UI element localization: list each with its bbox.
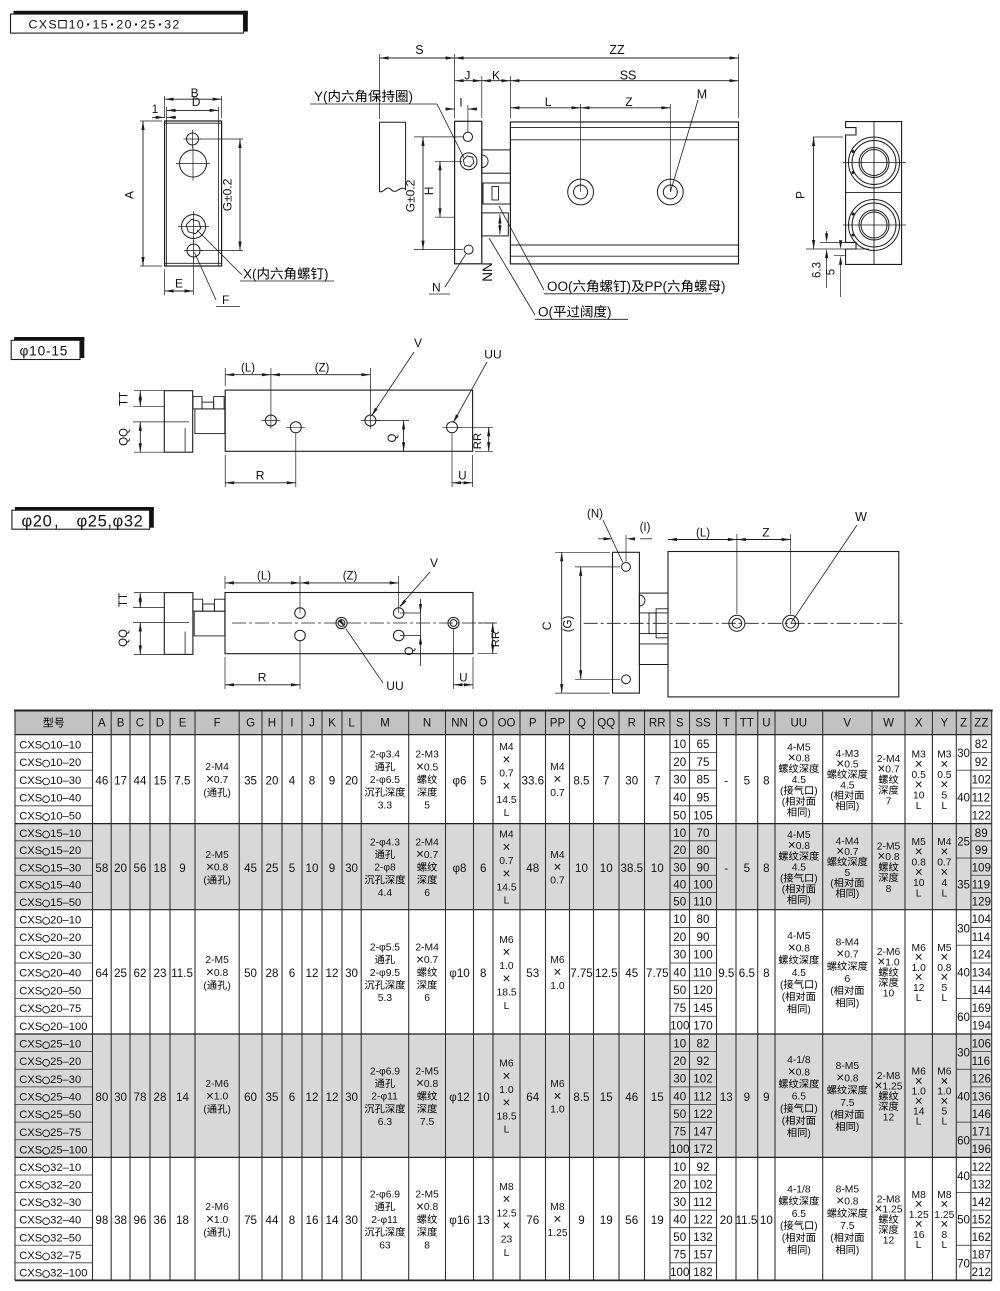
- svg-text:32–100: 32–100: [50, 1267, 87, 1279]
- svg-text:142: 142: [972, 1196, 991, 1209]
- svg-text:S: S: [415, 43, 423, 57]
- svg-text:CXS: CXS: [19, 1144, 42, 1156]
- svg-text:4.5: 4.5: [792, 775, 807, 786]
- svg-text:×: ×: [416, 847, 424, 862]
- svg-text:QQ: QQ: [597, 717, 615, 729]
- svg-text:W: W: [883, 717, 894, 729]
- svg-text:CXS: CXS: [19, 1250, 42, 1262]
- svg-text:TT: TT: [119, 392, 131, 406]
- svg-text:89: 89: [975, 827, 988, 840]
- svg-text:QQ: QQ: [119, 428, 131, 446]
- svg-text:20–100: 20–100: [50, 1021, 87, 1033]
- svg-text:6.5: 6.5: [792, 1092, 807, 1103]
- svg-text:30: 30: [345, 862, 358, 875]
- svg-text:100: 100: [670, 1143, 689, 1156]
- svg-text:92: 92: [697, 1161, 710, 1174]
- svg-text:78: 78: [134, 1091, 147, 1104]
- svg-text:E: E: [175, 277, 183, 291]
- svg-text:J: J: [464, 68, 470, 82]
- svg-text:W: W: [855, 510, 867, 524]
- svg-text:6: 6: [845, 974, 851, 985]
- svg-text:2-φ4.3: 2-φ4.3: [370, 837, 400, 848]
- svg-text:): ): [807, 808, 810, 819]
- svg-text:CXS: CXS: [19, 1092, 42, 1104]
- svg-text:212: 212: [972, 1266, 991, 1279]
- svg-text:CXS: CXS: [19, 1180, 42, 1192]
- svg-text:1.25: 1.25: [882, 1205, 902, 1216]
- svg-text:CXS: CXS: [19, 1215, 42, 1227]
- svg-text:0.7: 0.7: [885, 765, 900, 776]
- svg-text:32: 32: [164, 17, 180, 31]
- svg-text:10: 10: [575, 862, 588, 875]
- svg-text:136: 136: [972, 1090, 991, 1103]
- svg-text:2-φ6.9: 2-φ6.9: [370, 1066, 400, 1077]
- svg-text:Y(: Y(: [314, 89, 328, 104]
- svg-text:(G): (G): [563, 616, 575, 633]
- svg-text:): ): [227, 876, 230, 887]
- svg-text:25–10: 25–10: [50, 1039, 81, 1051]
- svg-text:×: ×: [554, 965, 562, 980]
- svg-text:10–20: 10–20: [50, 757, 81, 769]
- svg-text:Z: Z: [960, 717, 967, 729]
- svg-text:Y: Y: [941, 717, 949, 729]
- svg-text:×: ×: [503, 778, 511, 793]
- svg-text:20: 20: [673, 844, 686, 857]
- svg-text:R: R: [628, 717, 636, 729]
- svg-text:106: 106: [972, 1037, 991, 1050]
- svg-text:10: 10: [673, 913, 686, 926]
- svg-text:×: ×: [836, 844, 844, 859]
- svg-text:30: 30: [673, 1073, 686, 1086]
- svg-text:1.0: 1.0: [550, 981, 565, 992]
- svg-text:L: L: [916, 993, 922, 1004]
- svg-text:SS: SS: [695, 717, 711, 729]
- svg-text:25–40: 25–40: [50, 1092, 81, 1104]
- svg-text:G±0.2: G±0.2: [404, 179, 418, 212]
- svg-text:60: 60: [957, 1011, 970, 1024]
- svg-text:2-φ11: 2-φ11: [371, 1215, 398, 1226]
- svg-text:G±0.2: G±0.2: [221, 178, 235, 211]
- svg-text:(: (: [830, 986, 834, 997]
- svg-text:5: 5: [826, 269, 838, 275]
- svg-text:75: 75: [673, 1126, 686, 1139]
- svg-text:0.8: 0.8: [424, 1202, 439, 1213]
- svg-text:96: 96: [134, 1214, 147, 1227]
- svg-text:20: 20: [345, 774, 358, 787]
- svg-text:L: L: [504, 1248, 510, 1259]
- svg-text:H: H: [268, 717, 276, 729]
- svg-text:): ): [856, 998, 859, 1009]
- svg-text:L: L: [942, 801, 948, 812]
- svg-text:14.5: 14.5: [497, 795, 517, 806]
- svg-text:9: 9: [578, 1214, 584, 1227]
- svg-text:R: R: [258, 671, 267, 685]
- svg-text:×: ×: [416, 759, 424, 774]
- svg-text:0.7: 0.7: [424, 955, 439, 966]
- svg-text:80: 80: [697, 844, 710, 857]
- svg-text:17: 17: [114, 774, 127, 787]
- svg-text:X(: X(: [243, 267, 257, 282]
- svg-text:14.5: 14.5: [497, 883, 517, 894]
- svg-text:(: (: [782, 1233, 786, 1244]
- svg-text:20: 20: [114, 862, 127, 875]
- svg-text:CXS: CXS: [19, 1197, 42, 1209]
- svg-text:144: 144: [972, 984, 992, 997]
- svg-text:R: R: [256, 469, 265, 483]
- svg-text:): ): [814, 786, 817, 797]
- svg-text:20–10: 20–10: [50, 914, 81, 926]
- svg-text:): ): [227, 788, 230, 799]
- svg-text:0.8: 0.8: [844, 1073, 859, 1084]
- svg-text:CXS: CXS: [19, 1162, 42, 1174]
- svg-text:2-φ6.5: 2-φ6.5: [370, 775, 400, 786]
- svg-text:×: ×: [503, 945, 511, 960]
- svg-text:7.5: 7.5: [840, 1098, 855, 1109]
- svg-text:(N): (N): [587, 509, 603, 521]
- svg-text:): ): [856, 1122, 859, 1133]
- svg-text:32–50: 32–50: [50, 1232, 81, 1244]
- svg-text:CXS: CXS: [19, 811, 42, 823]
- svg-text:25: 25: [140, 17, 156, 31]
- svg-text:15–50: 15–50: [50, 897, 81, 909]
- svg-text:CXS: CXS: [19, 985, 42, 997]
- svg-text:25: 25: [266, 862, 279, 875]
- svg-text:×: ×: [836, 756, 844, 771]
- svg-text:CXS: CXS: [19, 897, 42, 909]
- svg-text:CXS: CXS: [19, 1056, 42, 1068]
- svg-text:40: 40: [957, 1091, 970, 1104]
- svg-text:30: 30: [673, 774, 686, 787]
- svg-text:19: 19: [651, 1214, 664, 1227]
- svg-text:18: 18: [154, 862, 167, 875]
- svg-text:CXS: CXS: [19, 1039, 42, 1051]
- svg-text:30: 30: [957, 1046, 970, 1059]
- svg-text:(: (: [780, 786, 784, 797]
- svg-text:145: 145: [693, 1002, 712, 1015]
- svg-text:QQ: QQ: [118, 629, 130, 647]
- svg-text:30: 30: [957, 747, 970, 760]
- svg-text:L: L: [942, 1240, 948, 1251]
- svg-text:75: 75: [697, 756, 710, 769]
- svg-text:32–40: 32–40: [50, 1215, 81, 1227]
- svg-text:×: ×: [836, 1070, 844, 1085]
- svg-text:): ): [721, 279, 726, 294]
- svg-text:35: 35: [244, 774, 257, 787]
- svg-text:): ): [607, 305, 612, 320]
- svg-text:7: 7: [603, 774, 609, 787]
- svg-text:OO: OO: [498, 717, 516, 729]
- svg-text:25–100: 25–100: [50, 1144, 87, 1156]
- svg-text:187: 187: [972, 1249, 991, 1262]
- svg-text:L: L: [504, 1125, 510, 1136]
- svg-text:D: D: [192, 95, 201, 109]
- svg-text:S: S: [676, 717, 684, 729]
- svg-text:23: 23: [154, 967, 167, 980]
- svg-text:45: 45: [625, 967, 638, 980]
- svg-text:CXS: CXS: [19, 1074, 42, 1086]
- svg-text:2-φ6.9: 2-φ6.9: [370, 1190, 400, 1201]
- svg-text:Z: Z: [625, 95, 632, 109]
- svg-text:V: V: [430, 556, 438, 570]
- svg-text:12: 12: [326, 967, 339, 980]
- svg-text:(: (: [830, 878, 834, 889]
- svg-text:CXS: CXS: [19, 1003, 42, 1015]
- svg-text:): ): [814, 1221, 817, 1232]
- svg-text:(: (: [780, 874, 784, 885]
- svg-text:32–30: 32–30: [50, 1197, 81, 1209]
- svg-text:105: 105: [693, 809, 712, 822]
- svg-text:20–50: 20–50: [50, 985, 81, 997]
- svg-text:-: -: [724, 774, 728, 787]
- svg-text:CXS: CXS: [19, 739, 42, 751]
- svg-text:10: 10: [69, 17, 85, 31]
- svg-text:(: (: [830, 791, 834, 802]
- svg-text:6.3: 6.3: [812, 262, 824, 278]
- svg-text:O: O: [479, 717, 488, 729]
- svg-text:×: ×: [554, 772, 562, 787]
- svg-text:13: 13: [477, 1214, 490, 1227]
- svg-text:40: 40: [673, 792, 686, 805]
- svg-text:76: 76: [526, 1214, 539, 1227]
- svg-text:5: 5: [289, 862, 295, 875]
- svg-text:7.5: 7.5: [420, 1117, 435, 1128]
- svg-text:18: 18: [176, 1214, 189, 1227]
- svg-text:): ): [807, 1005, 810, 1016]
- svg-text:TT: TT: [118, 593, 130, 607]
- svg-text:194: 194: [972, 1020, 992, 1033]
- svg-text:50: 50: [244, 967, 257, 980]
- svg-text:2-φ11: 2-φ11: [371, 1092, 398, 1103]
- svg-text:90: 90: [697, 861, 710, 874]
- svg-text:Q: Q: [404, 647, 416, 656]
- svg-text:4-1/8: 4-1/8: [787, 1184, 811, 1195]
- svg-text:10: 10: [306, 862, 319, 875]
- svg-text:RR: RR: [649, 717, 666, 729]
- svg-text:φ6: φ6: [453, 774, 467, 787]
- svg-text:2-φ3.4: 2-φ3.4: [370, 750, 400, 761]
- svg-text:(I): (I): [640, 522, 651, 534]
- svg-text:32–20: 32–20: [50, 1180, 81, 1192]
- svg-text:170: 170: [693, 1020, 712, 1033]
- svg-text:G: G: [246, 717, 255, 729]
- svg-text:): ): [627, 279, 632, 294]
- svg-text:8: 8: [309, 774, 315, 787]
- svg-text:20: 20: [266, 774, 279, 787]
- svg-text:1.0: 1.0: [550, 1105, 565, 1116]
- svg-text:6: 6: [424, 888, 430, 899]
- svg-text:0.8: 0.8: [885, 852, 900, 863]
- svg-text:): ): [227, 1228, 230, 1239]
- svg-text:82: 82: [697, 1037, 710, 1050]
- svg-text:102: 102: [693, 1178, 712, 1191]
- svg-text:30: 30: [345, 967, 358, 980]
- svg-text:102: 102: [972, 774, 991, 787]
- svg-text:L: L: [504, 808, 510, 819]
- svg-text:CXS: CXS: [19, 950, 42, 962]
- svg-text:32–10: 32–10: [50, 1162, 81, 1174]
- svg-text:RR: RR: [490, 631, 502, 647]
- svg-text:×: ×: [206, 772, 214, 787]
- svg-text:36: 36: [154, 1214, 167, 1227]
- svg-text:CXS: CXS: [19, 1267, 42, 1279]
- svg-text:2-φ9.5: 2-φ9.5: [370, 968, 400, 979]
- svg-text:129: 129: [972, 896, 991, 909]
- svg-text:N: N: [432, 281, 441, 295]
- svg-text:(: (: [830, 1233, 834, 1244]
- svg-text:6.5: 6.5: [739, 967, 755, 980]
- svg-text:4: 4: [289, 774, 296, 787]
- svg-text:9: 9: [763, 1091, 769, 1104]
- svg-text:122: 122: [972, 1161, 991, 1174]
- svg-text:): ): [807, 1128, 810, 1139]
- svg-text:(: (: [782, 1116, 786, 1127]
- svg-text:48: 48: [526, 862, 539, 875]
- svg-text:9.5: 9.5: [718, 967, 734, 980]
- svg-text:62: 62: [134, 967, 147, 980]
- svg-text:): ): [807, 895, 810, 906]
- svg-text:V: V: [414, 336, 422, 350]
- svg-text:100: 100: [693, 879, 712, 892]
- svg-text:UU: UU: [386, 679, 403, 693]
- svg-text:8: 8: [424, 1240, 430, 1251]
- svg-text:33.6: 33.6: [522, 774, 545, 787]
- svg-text:23: 23: [501, 1235, 513, 1246]
- svg-text:-: -: [724, 862, 728, 875]
- svg-text:×: ×: [416, 1199, 424, 1214]
- svg-text:C: C: [136, 717, 144, 729]
- svg-text:46: 46: [95, 774, 108, 787]
- svg-text:120: 120: [693, 984, 712, 997]
- svg-text:TT: TT: [740, 717, 754, 729]
- svg-text:K: K: [328, 717, 336, 729]
- svg-text:): ): [856, 889, 859, 900]
- svg-text:A: A: [98, 717, 106, 729]
- svg-text:100: 100: [670, 1020, 689, 1033]
- svg-text:0.7: 0.7: [550, 876, 565, 887]
- svg-text:0.8: 0.8: [214, 863, 229, 874]
- svg-text:44: 44: [266, 1214, 279, 1227]
- svg-text:7.5: 7.5: [174, 774, 190, 787]
- svg-text:×: ×: [836, 1193, 844, 1208]
- svg-text:U: U: [459, 673, 467, 685]
- svg-text:φ25,φ32: φ25,φ32: [77, 512, 144, 530]
- svg-text:122: 122: [972, 809, 991, 822]
- svg-text:64: 64: [526, 1091, 539, 1104]
- svg-text:122: 122: [693, 1214, 712, 1227]
- svg-text:Q: Q: [577, 717, 586, 729]
- svg-text:119: 119: [972, 879, 990, 892]
- svg-text:K: K: [492, 68, 500, 82]
- svg-text:70: 70: [697, 827, 710, 840]
- svg-text:×: ×: [877, 954, 885, 969]
- svg-text:×: ×: [416, 952, 424, 967]
- svg-text:6.3: 6.3: [378, 1117, 393, 1128]
- svg-text:×: ×: [875, 1201, 883, 1216]
- svg-text:×: ×: [788, 750, 796, 765]
- svg-text:φ16: φ16: [449, 1214, 469, 1227]
- svg-text:CXS: CXS: [19, 863, 42, 875]
- svg-text:CXS: CXS: [19, 845, 42, 857]
- svg-text:50: 50: [673, 896, 686, 909]
- svg-text:): ): [227, 1105, 230, 1116]
- svg-text:13: 13: [720, 1091, 733, 1104]
- svg-text:80: 80: [95, 1091, 108, 1104]
- svg-text:6: 6: [424, 993, 430, 1004]
- svg-text:35: 35: [957, 879, 970, 892]
- svg-text:): ): [814, 874, 817, 885]
- svg-text:): ): [856, 1245, 859, 1256]
- svg-text:×: ×: [554, 1212, 562, 1227]
- svg-text:104: 104: [972, 913, 992, 926]
- svg-text:Z: Z: [762, 526, 769, 540]
- svg-text:L: L: [942, 1117, 948, 1128]
- svg-text:L: L: [916, 801, 922, 812]
- svg-text:12: 12: [883, 1236, 895, 1247]
- svg-text:9: 9: [329, 774, 335, 787]
- svg-text:46: 46: [625, 1091, 638, 1104]
- svg-text:9: 9: [744, 1091, 750, 1104]
- svg-text:L: L: [916, 888, 922, 899]
- svg-text:6: 6: [289, 967, 295, 980]
- svg-text:102: 102: [693, 1073, 712, 1086]
- svg-text:(: (: [782, 797, 786, 808]
- svg-text:0.7: 0.7: [424, 850, 439, 861]
- svg-text:110: 110: [693, 967, 711, 980]
- svg-text:(: (: [830, 1110, 834, 1121]
- svg-text:L: L: [916, 1117, 922, 1128]
- svg-text:50: 50: [673, 984, 686, 997]
- svg-text:8: 8: [763, 967, 769, 980]
- svg-text:30: 30: [957, 922, 970, 935]
- svg-text:100: 100: [670, 1266, 689, 1279]
- svg-text:×: ×: [503, 840, 511, 855]
- svg-text:(: (: [780, 1104, 784, 1115]
- svg-text:O(: O(: [538, 305, 554, 320]
- svg-text:L: L: [942, 888, 948, 899]
- svg-text:100: 100: [693, 949, 712, 962]
- svg-text:147: 147: [693, 1126, 712, 1139]
- svg-text:6: 6: [289, 1091, 295, 1104]
- svg-text:8.5: 8.5: [573, 1091, 589, 1104]
- svg-text:×: ×: [206, 859, 214, 874]
- svg-text:CXS: CXS: [19, 828, 42, 840]
- svg-text:NN: NN: [451, 717, 468, 729]
- svg-text:182: 182: [693, 1266, 712, 1279]
- svg-text:9: 9: [179, 862, 185, 875]
- svg-text:25–30: 25–30: [50, 1074, 81, 1086]
- svg-text:64: 64: [95, 967, 108, 980]
- svg-text:φ10: φ10: [449, 967, 469, 980]
- svg-text:×: ×: [206, 1212, 214, 1227]
- svg-text:×: ×: [206, 965, 214, 980]
- svg-text:(Z): (Z): [343, 571, 358, 583]
- svg-text:10–50: 10–50: [50, 811, 81, 823]
- svg-text:15: 15: [651, 1091, 664, 1104]
- svg-text:40: 40: [673, 879, 686, 892]
- svg-text:(: (: [203, 1228, 207, 1239]
- svg-text:CXS: CXS: [19, 914, 42, 926]
- svg-text:V: V: [844, 717, 852, 729]
- svg-text:×: ×: [554, 1088, 562, 1103]
- svg-text:PP(: PP(: [645, 279, 668, 294]
- svg-text:28: 28: [266, 967, 279, 980]
- svg-text:×: ×: [503, 1218, 511, 1233]
- svg-text:CXS: CXS: [19, 757, 42, 769]
- svg-text:CXS: CXS: [19, 775, 42, 787]
- svg-text:38: 38: [114, 1214, 127, 1227]
- svg-text:5.3: 5.3: [378, 993, 393, 1004]
- svg-text:8: 8: [763, 862, 769, 875]
